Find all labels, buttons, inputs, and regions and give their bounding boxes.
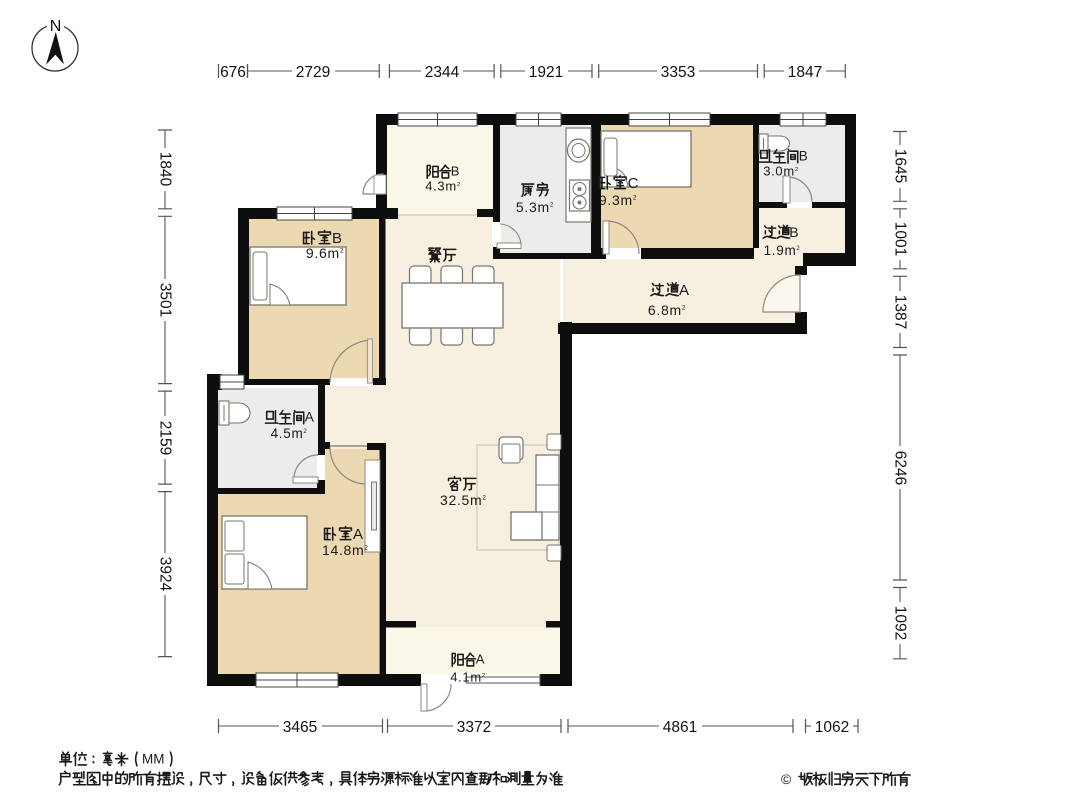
svg-text:1001: 1001 [892, 222, 909, 256]
svg-text:B: B [789, 224, 798, 240]
svg-text:5.3m2: 5.3m2 [516, 199, 554, 215]
svg-text:2729: 2729 [296, 64, 330, 81]
svg-text:3353: 3353 [661, 64, 695, 81]
svg-text:3.0m2: 3.0m2 [763, 164, 799, 179]
svg-text:14.8m2: 14.8m2 [322, 542, 369, 558]
svg-text:1387: 1387 [892, 295, 909, 329]
svg-text:N: N [50, 18, 62, 35]
svg-text:6.8m2: 6.8m2 [648, 302, 686, 318]
svg-text:3372: 3372 [457, 719, 491, 736]
svg-text:B: B [451, 163, 460, 178]
svg-text:2344: 2344 [425, 64, 460, 81]
svg-text:C: C [628, 175, 639, 192]
svg-text:MM: MM [142, 752, 165, 767]
svg-text:1847: 1847 [788, 64, 822, 81]
svg-text:1.9m2: 1.9m2 [764, 243, 801, 258]
svg-text:9.3m2: 9.3m2 [599, 192, 637, 208]
svg-text:2159: 2159 [157, 421, 174, 455]
svg-text:4.5m2: 4.5m2 [271, 426, 308, 441]
svg-text:A: A [305, 410, 314, 425]
svg-text:6246: 6246 [892, 451, 909, 485]
svg-text:A: A [476, 651, 485, 666]
svg-text:4861: 4861 [663, 719, 697, 736]
svg-text:B: B [799, 149, 808, 164]
svg-text:1092: 1092 [892, 606, 909, 640]
svg-text:1840: 1840 [157, 152, 174, 187]
svg-text:3465: 3465 [283, 719, 317, 736]
svg-text:3924: 3924 [157, 557, 174, 592]
svg-text:676: 676 [220, 64, 246, 81]
svg-text:A: A [679, 282, 689, 299]
svg-text:1062: 1062 [815, 719, 849, 736]
svg-text:©: © [781, 771, 792, 787]
svg-text:A: A [353, 526, 363, 543]
svg-text:4.3m2: 4.3m2 [425, 179, 461, 194]
svg-text:9.6m2: 9.6m2 [306, 245, 344, 261]
svg-text:4.1m2: 4.1m2 [450, 670, 486, 685]
svg-text:1921: 1921 [529, 64, 563, 81]
svg-text:1645: 1645 [892, 149, 909, 183]
svg-text:3501: 3501 [157, 283, 174, 317]
svg-text:32.5m2: 32.5m2 [440, 492, 487, 508]
